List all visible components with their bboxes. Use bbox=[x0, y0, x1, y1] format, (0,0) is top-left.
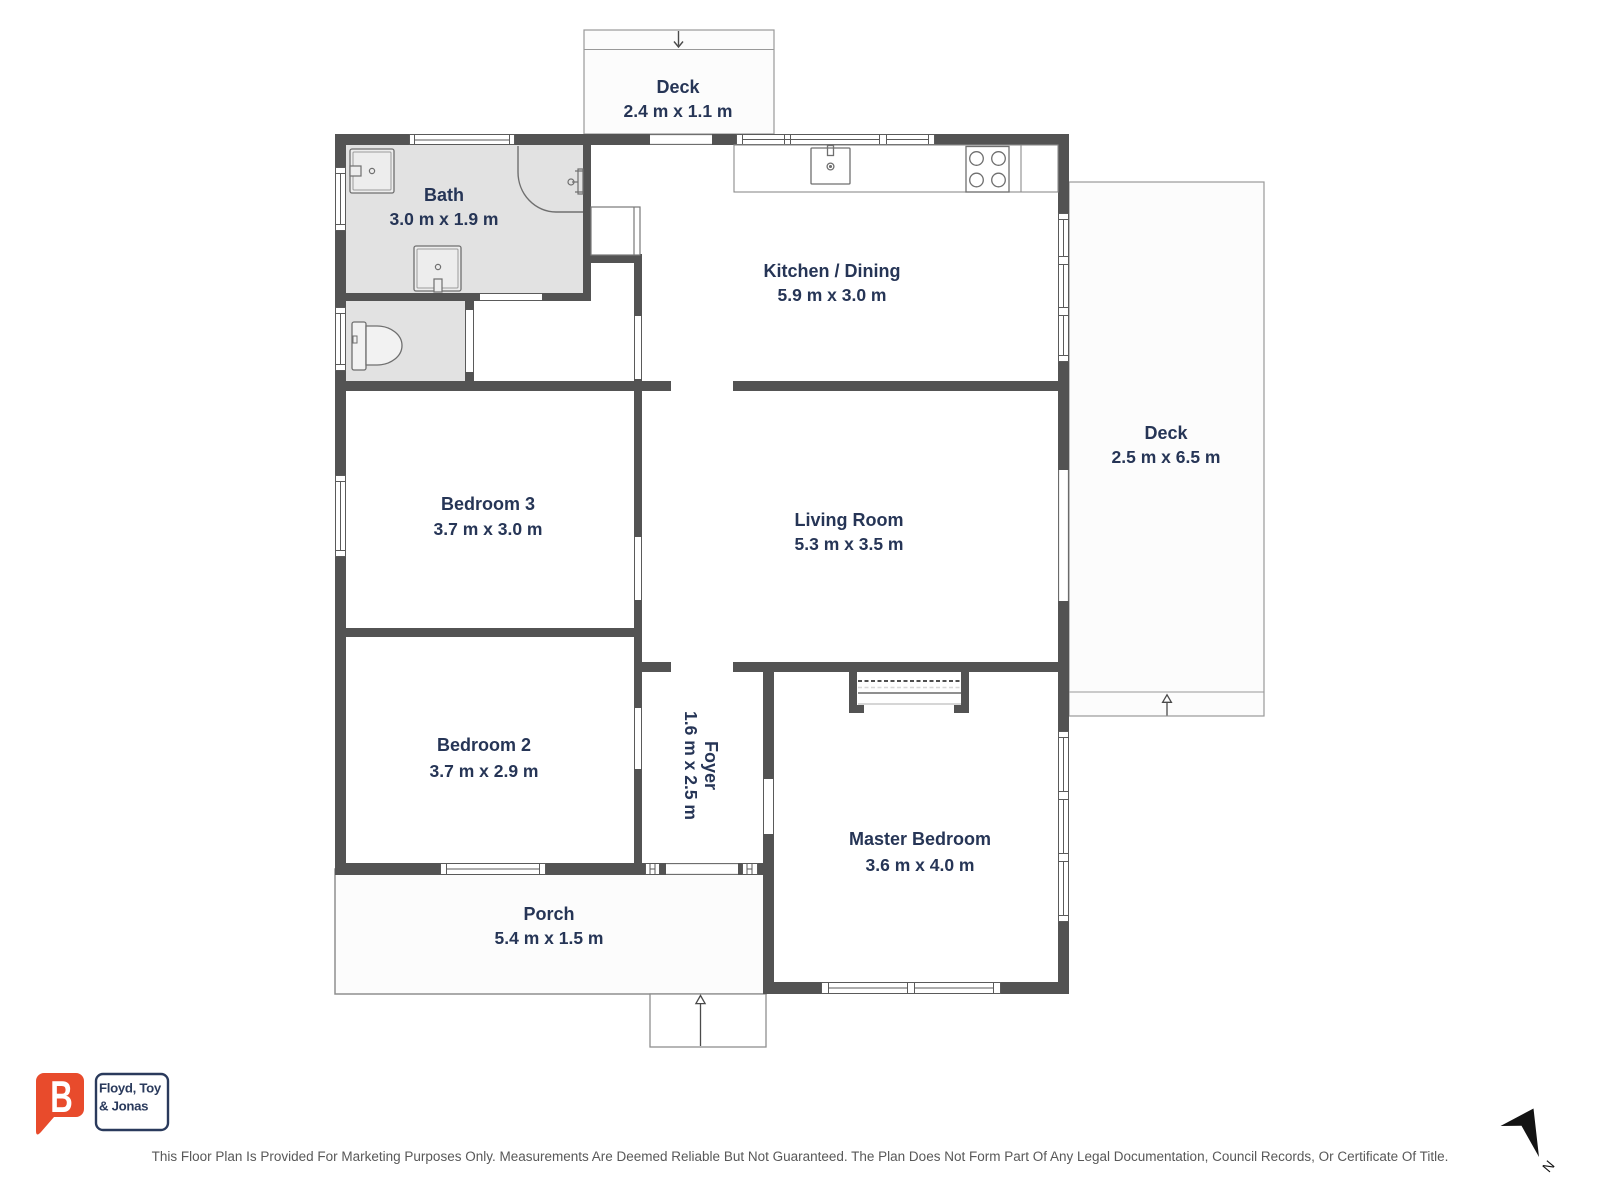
svg-text:Bedroom 3: Bedroom 3 bbox=[441, 494, 535, 514]
svg-text:2.5 m x 6.5 m: 2.5 m x 6.5 m bbox=[1112, 447, 1221, 467]
svg-text:Bedroom 2: Bedroom 2 bbox=[437, 735, 531, 755]
svg-text:1.6 m x 2.5 m: 1.6 m x 2.5 m bbox=[681, 711, 701, 820]
svg-text:3.7 m x 3.0 m: 3.7 m x 3.0 m bbox=[434, 519, 543, 539]
svg-text:& Jonas: & Jonas bbox=[99, 1099, 148, 1114]
svg-text:This Floor Plan Is Provided Fo: This Floor Plan Is Provided For Marketin… bbox=[152, 1149, 1449, 1164]
svg-text:Floyd, Toy: Floyd, Toy bbox=[99, 1081, 162, 1096]
svg-text:3.7 m x 2.9 m: 3.7 m x 2.9 m bbox=[430, 761, 539, 781]
svg-text:Deck: Deck bbox=[656, 77, 700, 97]
svg-text:Master Bedroom: Master Bedroom bbox=[849, 829, 991, 849]
svg-text:Porch: Porch bbox=[523, 904, 574, 924]
svg-text:Kitchen / Dining: Kitchen / Dining bbox=[764, 261, 901, 281]
svg-text:Deck: Deck bbox=[1144, 423, 1188, 443]
svg-text:Foyer: Foyer bbox=[701, 741, 721, 790]
svg-text:3.0 m x 1.9 m: 3.0 m x 1.9 m bbox=[390, 209, 499, 229]
svg-text:2.4 m x 1.1 m: 2.4 m x 1.1 m bbox=[624, 101, 733, 121]
svg-text:3.6 m x 4.0 m: 3.6 m x 4.0 m bbox=[866, 855, 975, 875]
svg-text:5.9 m x 3.0 m: 5.9 m x 3.0 m bbox=[778, 285, 887, 305]
svg-text:B: B bbox=[50, 1073, 73, 1123]
svg-text:5.3 m x 3.5 m: 5.3 m x 3.5 m bbox=[795, 534, 904, 554]
svg-text:Living Room: Living Room bbox=[795, 510, 904, 530]
svg-text:Bath: Bath bbox=[424, 185, 464, 205]
svg-text:5.4 m x 1.5 m: 5.4 m x 1.5 m bbox=[495, 928, 604, 948]
